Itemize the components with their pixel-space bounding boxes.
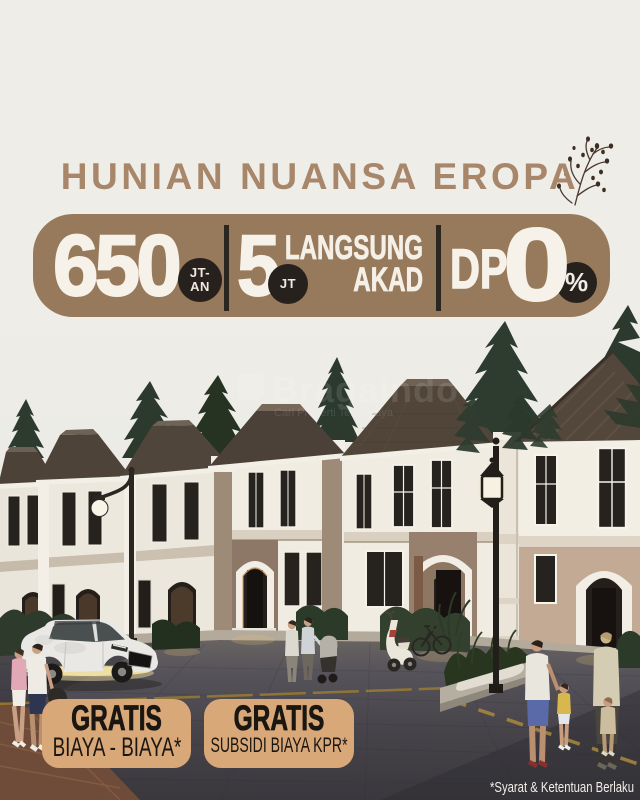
svg-text:Bragaindo: Bragaindo [272, 369, 459, 410]
svg-text:Cari Properti Terpercaya: Cari Properti Terpercaya [274, 407, 394, 419]
